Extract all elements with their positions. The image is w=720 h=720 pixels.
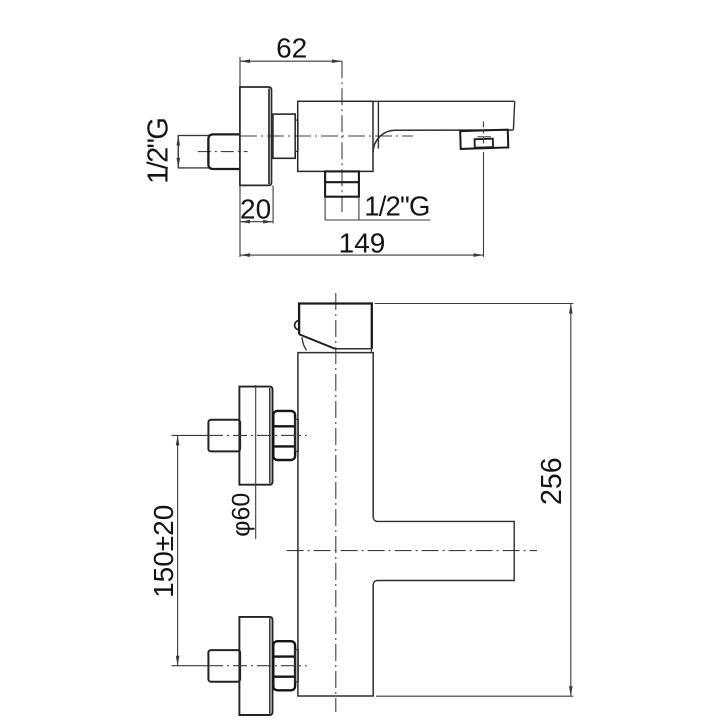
svg-text:1/2"G: 1/2"G [143, 119, 175, 184]
svg-text:1/2"G: 1/2"G [364, 191, 429, 222]
svg-text:62: 62 [276, 33, 307, 64]
svg-text:φ60: φ60 [228, 493, 256, 537]
svg-text:149: 149 [339, 228, 386, 259]
svg-text:150±20: 150±20 [148, 505, 179, 598]
svg-text:20: 20 [240, 194, 271, 225]
svg-text:256: 256 [536, 457, 568, 505]
